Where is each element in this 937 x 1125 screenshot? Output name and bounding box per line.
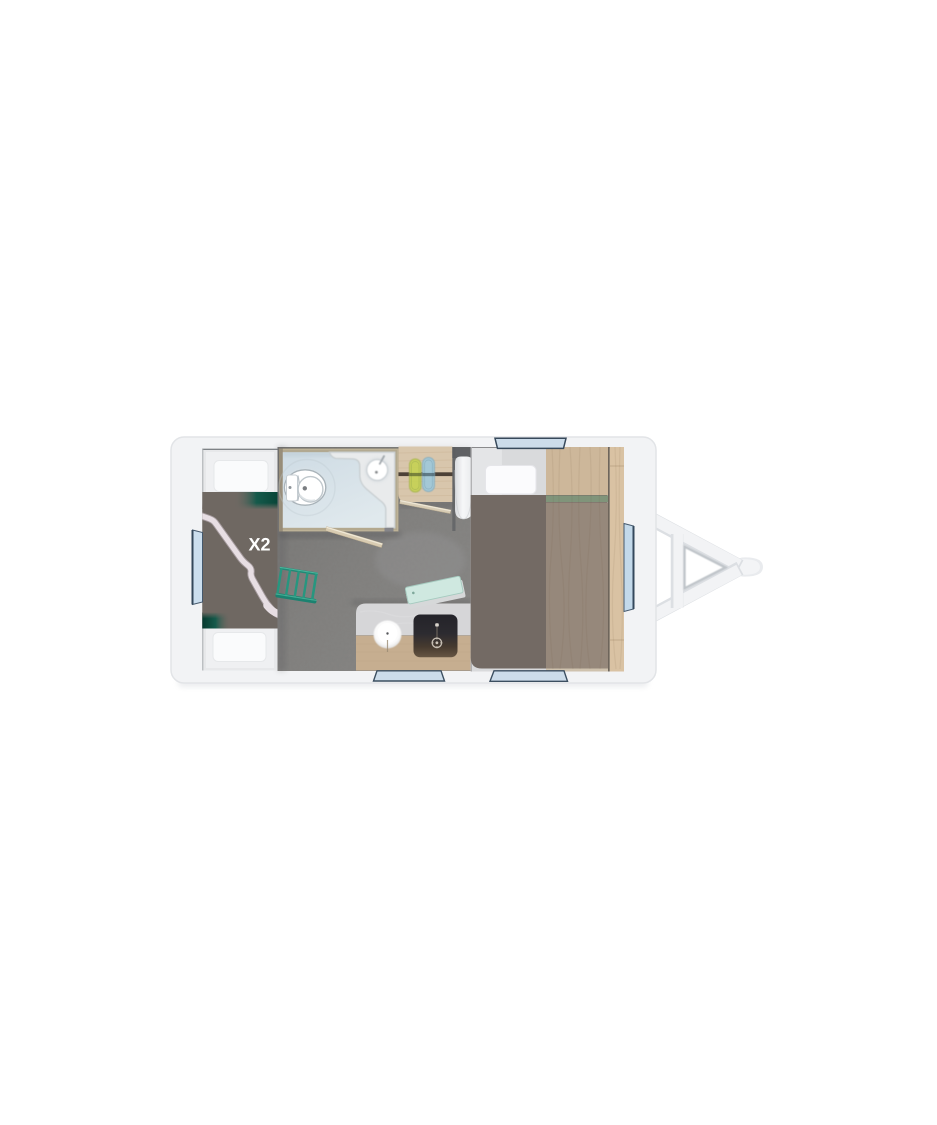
svg-text:X2: X2	[248, 535, 270, 555]
